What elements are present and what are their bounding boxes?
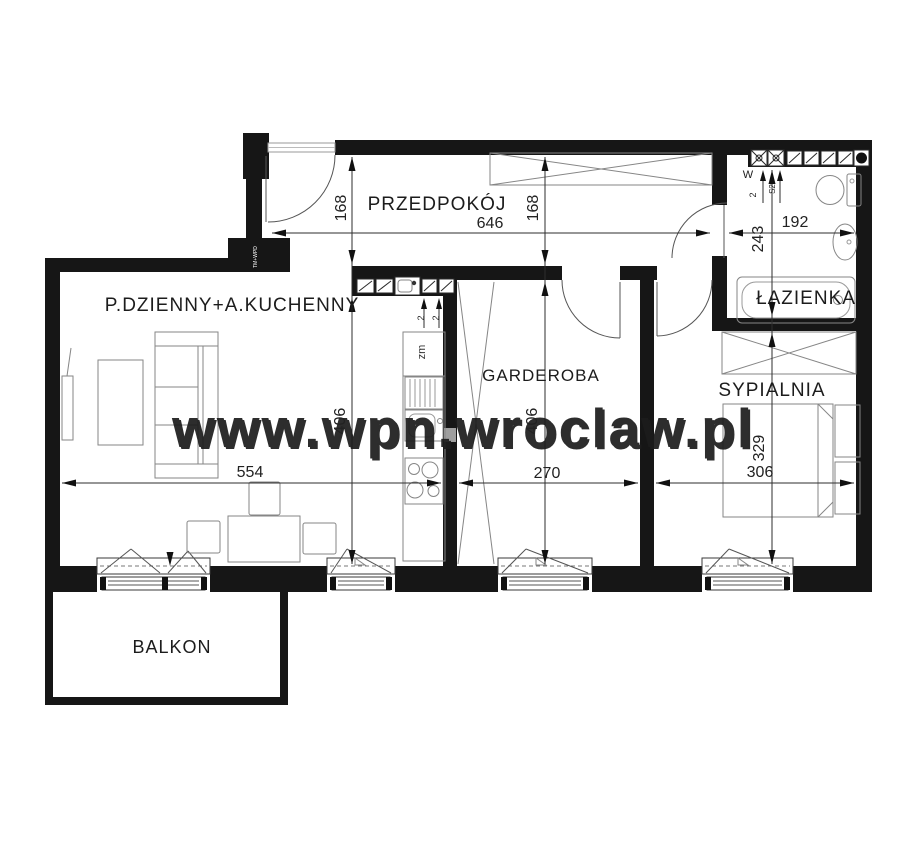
vent-w-label: W [743, 169, 754, 181]
room-label-wardrobe: GARDEROBA [482, 366, 600, 385]
kitchen-vent-shafts [357, 277, 454, 295]
dim-wardrobe-depth: 406 [524, 408, 541, 435]
pipe-riser-icon [856, 153, 867, 164]
kitchen-vent-dim-b: 2 [431, 315, 441, 320]
room-label-hallway: PRZEDPOKÓJ [368, 193, 507, 215]
dim-bedroom-width: 306 [747, 464, 774, 481]
room-label-living: P.DZIENNY+A.KUCHENNY [105, 295, 360, 316]
dim-bath-width: 192 [782, 214, 809, 231]
floor-plan-page: www.wpn.wroclaw.pl www.wpn.wroclaw.pl PR… [0, 0, 917, 841]
room-label-balcony: BALKON [132, 637, 211, 657]
dim-living-width: 554 [237, 464, 264, 481]
room-label-bathroom: ŁAZIENKA [756, 288, 856, 309]
dim-bath-depth: 243 [750, 226, 767, 253]
dim-hall-depth-right: 168 [525, 195, 542, 222]
vent-dim-label: 2 [748, 192, 758, 197]
dim-living-depth: 406 [332, 408, 349, 435]
dim-hall-depth-left: 168 [333, 195, 350, 222]
kitchen-vent-dim-a: 2 [416, 315, 426, 320]
floor-plan-drawing: www.wpn.wroclaw.pl www.wpn.wroclaw.pl PR… [0, 0, 917, 841]
dim-bedroom-depth: 329 [751, 435, 768, 462]
vent-s2-label: S2 [768, 184, 777, 194]
watermark-text: www.wpn.wroclaw.pl [171, 397, 754, 459]
dim-hall-width: 646 [477, 215, 504, 232]
watermark: www.wpn.wroclaw.pl www.wpn.wroclaw.pl [171, 397, 756, 461]
dishwasher-label: zm [416, 345, 428, 360]
room-label-bedroom: SYPIALNIA [718, 380, 825, 401]
entry-note-label: TM+WPD [253, 246, 259, 268]
dim-wardrobe-width: 270 [534, 465, 561, 482]
bathroom-vent-shafts [751, 150, 869, 166]
